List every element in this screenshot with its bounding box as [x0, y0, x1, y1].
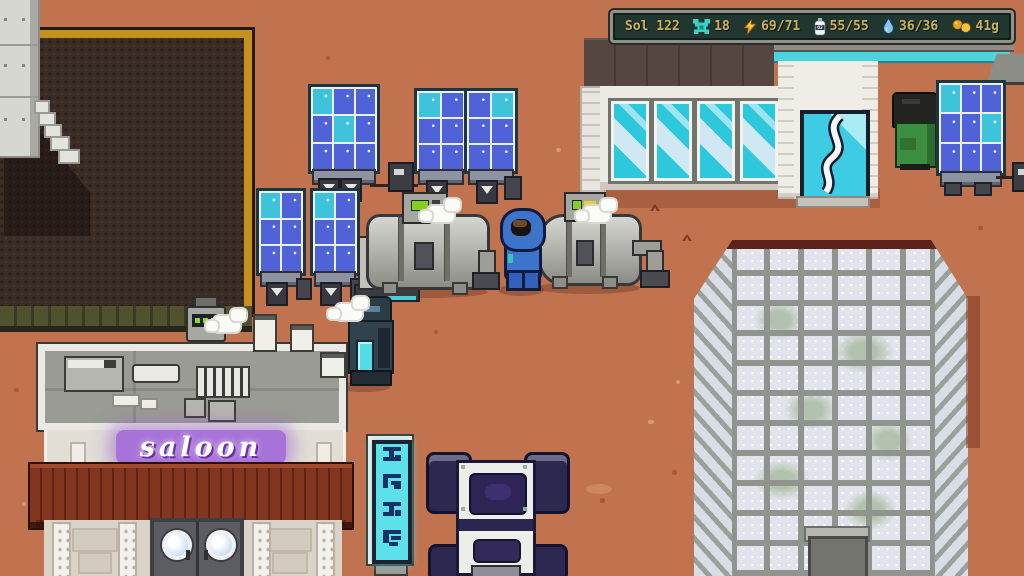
droid-body	[348, 320, 394, 374]
solar-panel[interactable]	[414, 88, 468, 174]
oxygen-icon-label: O2	[817, 25, 823, 31]
door-threshold	[796, 196, 870, 208]
rivet	[4, 64, 7, 67]
tank-band	[398, 217, 404, 281]
solar-panel[interactable]	[310, 188, 360, 276]
roof-chimney	[290, 324, 314, 352]
wall-pilaster	[52, 522, 71, 576]
rover-vehicle[interactable]	[416, 444, 570, 576]
ground-speckle	[326, 56, 330, 60]
solar-cell	[315, 193, 334, 218]
solar-cell	[982, 144, 1001, 171]
rover-bumper	[471, 565, 521, 576]
panel-foot	[974, 182, 992, 196]
tower-step	[58, 149, 80, 164]
player-face	[511, 219, 531, 236]
saloon-doors[interactable]	[154, 522, 240, 576]
tank-hatch	[576, 240, 594, 266]
solar-cell	[334, 144, 353, 169]
greenhouse-shadow	[966, 296, 980, 448]
money-stat: 41g	[952, 19, 999, 34]
solar-cell	[356, 144, 375, 169]
solar-cell	[419, 93, 440, 117]
tank-band	[444, 217, 450, 281]
alien-glyphs-icon	[379, 444, 405, 554]
roof-debris	[140, 398, 158, 410]
steam-puff	[584, 206, 610, 222]
tank-foot	[452, 282, 468, 295]
sol-label: Sol 122	[625, 19, 680, 34]
solar-cell	[962, 85, 981, 112]
solar-cell	[261, 193, 280, 218]
energy-value: 69/71	[761, 19, 800, 34]
nanites-stat: 18	[693, 18, 730, 35]
solar-cell	[261, 220, 280, 245]
dust-patch	[586, 484, 612, 494]
solar-cell	[962, 144, 981, 171]
droid-tank	[356, 340, 374, 372]
solar-cell	[419, 119, 440, 143]
door-gap	[196, 522, 199, 576]
service-robot[interactable]	[186, 296, 246, 346]
nanite-icon	[693, 18, 710, 35]
ground-speckle	[600, 498, 605, 503]
solar-cell	[315, 246, 334, 271]
solar-cell	[469, 119, 490, 143]
wall-pilaster	[252, 522, 271, 576]
greenhouse-corner	[694, 249, 737, 576]
panel-connector	[266, 282, 288, 306]
ground-speckle	[672, 470, 677, 475]
player-leg	[522, 270, 541, 291]
ground-speckle	[676, 380, 680, 384]
wall-pilaster	[316, 522, 335, 576]
solar-panel[interactable]	[256, 188, 306, 276]
solar-cell	[442, 119, 463, 143]
solar-cell	[261, 246, 280, 271]
habitat-window	[608, 98, 652, 184]
roof-grill	[196, 366, 250, 398]
ground-speckle	[434, 330, 438, 334]
solar-cell	[282, 220, 301, 245]
saloon-neon-sign: saloon	[116, 430, 286, 464]
roof-seam	[133, 351, 136, 423]
solar-cell	[313, 89, 332, 114]
tower-seam	[0, 44, 38, 46]
solar-cell	[419, 145, 440, 169]
water-value: 36/36	[899, 19, 938, 34]
panel-connector	[504, 176, 522, 200]
status-bar: Sol 122 18 69/71 O2 55/55	[610, 10, 1014, 43]
solar-cell	[336, 246, 355, 271]
metal-tower	[0, 0, 40, 158]
roof-chimney	[253, 314, 277, 352]
junction-box[interactable]	[1012, 162, 1024, 192]
habitat-window	[694, 98, 738, 184]
solar-cell	[313, 116, 332, 141]
player-character[interactable]	[498, 208, 544, 296]
oxygen-stat: O2 55/55	[814, 18, 869, 36]
rivet	[4, 18, 7, 21]
tank-foot	[552, 276, 568, 289]
junction-box[interactable]	[388, 162, 414, 192]
ground-speckle	[22, 502, 26, 506]
roof-ac-unit	[64, 356, 124, 392]
money-value: 41g	[976, 19, 999, 34]
habitat-window	[651, 98, 695, 184]
water-stat: 36/36	[882, 18, 938, 35]
dumpster-base	[900, 164, 930, 170]
ground-speckle	[556, 148, 561, 152]
solar-cell	[282, 246, 301, 271]
ground-port	[640, 270, 670, 288]
wall-panel	[268, 528, 312, 552]
door-handle	[204, 550, 208, 560]
solar-cell	[313, 144, 332, 169]
game-viewport[interactable]: saloon	[0, 0, 1024, 576]
rivet	[4, 118, 7, 121]
sol-counter: Sol 122	[625, 19, 680, 34]
rover-hatch	[473, 539, 521, 563]
glass-door[interactable]	[800, 110, 870, 206]
solar-panel[interactable]	[464, 88, 518, 174]
nanites-value: 18	[714, 19, 730, 34]
rivet	[22, 64, 25, 67]
solar-cell	[941, 114, 960, 141]
robot-lights	[195, 318, 200, 323]
solar-cell	[982, 85, 1001, 112]
ac-grill	[68, 360, 116, 368]
solar-panel[interactable]	[936, 80, 1006, 176]
panel-foot	[944, 182, 962, 196]
wall-panel	[78, 552, 112, 574]
solar-cell	[941, 144, 960, 171]
player-hair	[513, 220, 527, 227]
solar-cell	[442, 145, 463, 169]
ground-speckle	[14, 388, 19, 392]
energy-bolt-icon	[743, 19, 757, 35]
oxygen-value: 55/55	[830, 19, 869, 34]
droid-base	[350, 370, 392, 386]
solar-cell	[334, 116, 353, 141]
solar-cell	[336, 193, 355, 218]
tank-band	[600, 217, 606, 277]
wall-panel	[272, 552, 308, 574]
roof-debris	[112, 394, 140, 407]
water-drop-icon	[882, 18, 895, 35]
steam-puff	[214, 316, 240, 332]
ground-port	[472, 272, 500, 290]
suit-accent	[508, 254, 513, 263]
rover-mid-band	[459, 519, 533, 531]
solar-cell	[334, 89, 353, 114]
solar-cell	[962, 114, 981, 141]
roof-vent	[320, 352, 346, 378]
solar-cell	[282, 193, 301, 218]
greenhouse-tower[interactable]	[694, 240, 968, 576]
panel-connector	[476, 180, 498, 204]
tank-foot	[382, 282, 398, 295]
green-dumpster[interactable]	[892, 92, 938, 170]
coins-icon	[952, 19, 972, 34]
solar-cell	[469, 93, 490, 117]
status-light-green	[572, 200, 582, 210]
solar-cell	[982, 114, 1001, 141]
panel-connector	[296, 278, 312, 300]
solar-cell	[492, 119, 513, 143]
steam-puff	[336, 304, 362, 320]
solar-cell	[315, 220, 334, 245]
solar-cell	[492, 145, 513, 169]
door-handle	[186, 550, 190, 560]
habitat-entry-rib	[778, 61, 794, 199]
tower-seam	[0, 96, 38, 98]
tank-hatch	[414, 242, 434, 270]
solar-cell	[442, 93, 463, 117]
roof-box	[208, 400, 236, 422]
habitat-window	[737, 98, 781, 184]
droid-pod	[378, 328, 390, 368]
solar-cell	[356, 89, 375, 114]
neon-pole-sign	[366, 434, 414, 566]
windshield-sheen	[485, 484, 511, 500]
tank-band	[566, 217, 572, 277]
rivet	[22, 118, 25, 121]
rivet	[22, 18, 25, 21]
wall-pilaster	[118, 522, 137, 576]
saloon-sign-text: saloon	[140, 432, 263, 463]
steam-puff	[428, 206, 454, 222]
greenhouse-door[interactable]	[808, 536, 868, 576]
energy-stat: 69/71	[743, 19, 800, 35]
sign-glass	[372, 440, 412, 564]
solar-cell	[336, 220, 355, 245]
solar-panel[interactable]	[308, 84, 380, 174]
body-screws	[461, 465, 465, 469]
rover-windshield	[469, 473, 527, 515]
solar-cell	[492, 93, 513, 117]
solar-cell	[941, 85, 960, 112]
wall-panel	[72, 528, 118, 552]
status-light-green	[411, 200, 429, 211]
door-decal	[804, 114, 858, 194]
dumpster-pocket	[900, 138, 916, 150]
door-porthole	[206, 530, 236, 560]
ground-speckle	[978, 226, 983, 230]
dumpster-handle	[902, 99, 920, 104]
solar-cell	[356, 116, 375, 141]
player-hood	[500, 208, 546, 252]
oxygen-tank-icon: O2	[814, 18, 826, 36]
rover-body	[456, 460, 536, 576]
ground-speckle	[648, 420, 654, 424]
roof-vent-long	[132, 364, 180, 383]
roof-box	[184, 398, 206, 418]
tank-foot	[602, 276, 618, 289]
ground-crack-mark	[682, 234, 692, 241]
solar-cell	[469, 145, 490, 169]
